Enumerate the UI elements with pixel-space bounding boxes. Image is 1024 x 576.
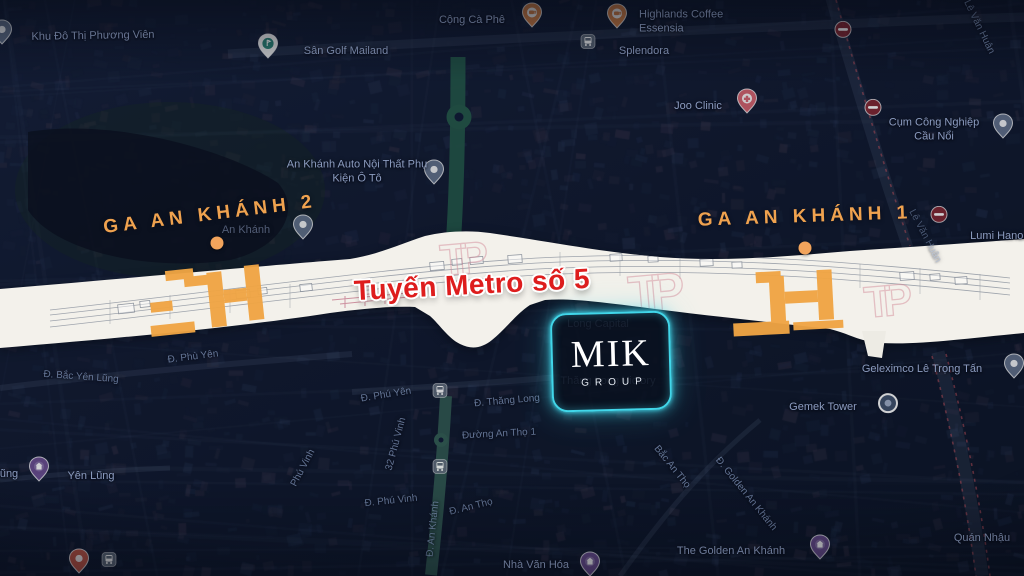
station-dot — [211, 237, 224, 250]
logo-brand-text: MIK — [570, 334, 651, 374]
map-stage: TP TP TP — [0, 0, 1024, 576]
station-label-ga-an-khanh-2: GA AN KHÁNH 2 — [102, 191, 318, 239]
metro-line-label: Tuyến Metro số 5 — [353, 263, 591, 307]
mik-group-logo: MIK GROUP — [550, 310, 673, 412]
logo-sub-text: GROUP — [575, 376, 648, 389]
promo-overlay: GA AN KHÁNH 2 GA AN KHÁNH 1 Tuyến Metro … — [0, 0, 1024, 576]
station-dot — [799, 242, 812, 255]
station-label-ga-an-khanh-1: GA AN KHÁNH 1 — [697, 202, 912, 231]
